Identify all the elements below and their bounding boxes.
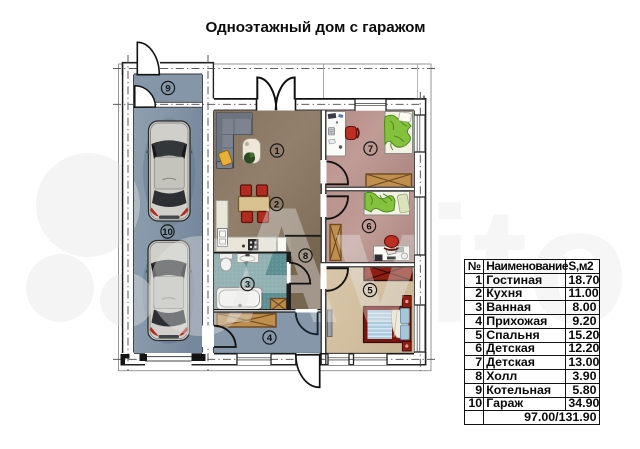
svg-text:5: 5 xyxy=(367,285,373,296)
svg-text:1: 1 xyxy=(274,146,280,157)
svg-text:10: 10 xyxy=(162,227,173,238)
svg-text:3: 3 xyxy=(245,279,250,290)
svg-text:4: 4 xyxy=(267,333,273,344)
svg-text:9: 9 xyxy=(165,83,170,94)
svg-text:7: 7 xyxy=(368,144,373,155)
svg-text:6: 6 xyxy=(366,221,371,232)
svg-text:8: 8 xyxy=(303,251,308,262)
svg-text:2: 2 xyxy=(274,199,279,210)
